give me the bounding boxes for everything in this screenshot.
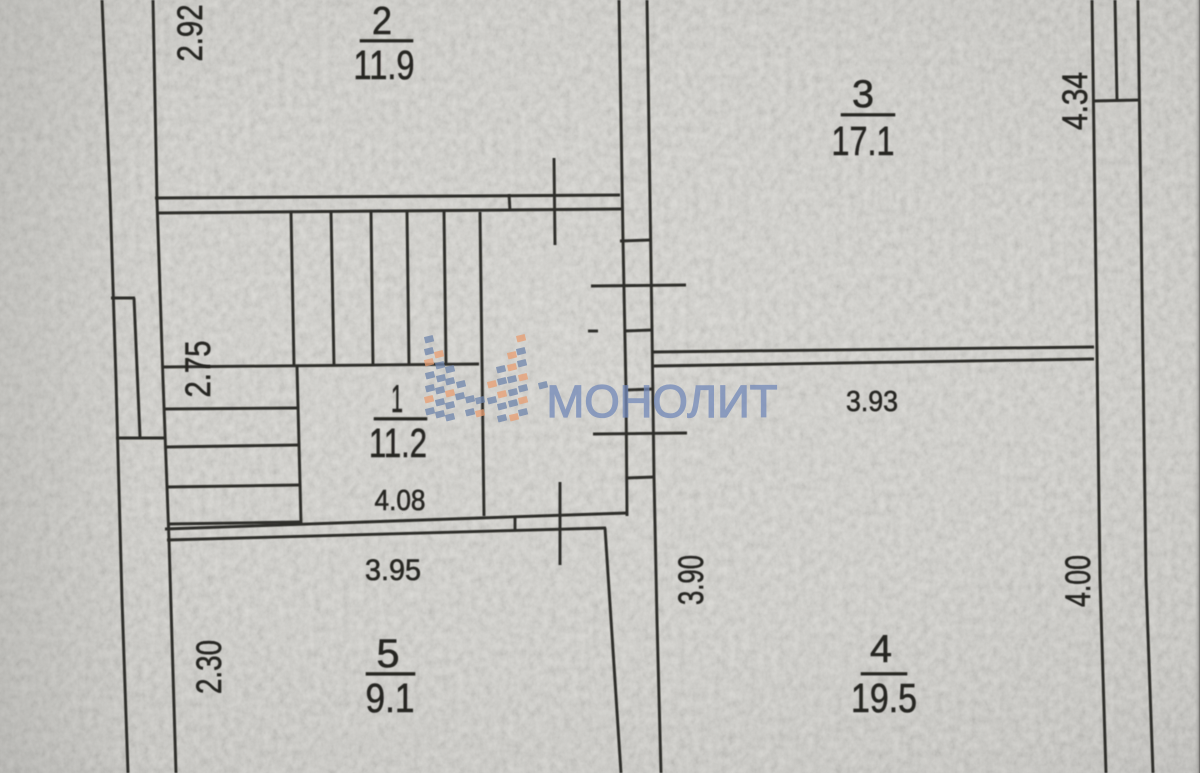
svg-text:3.93: 3.93 — [846, 386, 898, 418]
svg-text:5: 5 — [377, 632, 400, 676]
svg-text:3.95: 3.95 — [365, 554, 421, 587]
svg-text:2: 2 — [372, 0, 392, 43]
svg-text:3.90: 3.90 — [672, 555, 711, 605]
svg-text:2.75: 2.75 — [179, 341, 218, 398]
svg-text:2.30: 2.30 — [190, 640, 229, 694]
svg-text:2.92: 2.92 — [171, 5, 210, 62]
svg-text:4.08: 4.08 — [375, 485, 426, 517]
svg-text:4.00: 4.00 — [1059, 555, 1098, 607]
svg-text:9.1: 9.1 — [366, 675, 415, 721]
svg-text:11.9: 11.9 — [354, 42, 415, 88]
svg-text:17.1: 17.1 — [832, 118, 895, 164]
svg-text:4: 4 — [870, 628, 892, 671]
svg-text:1: 1 — [391, 378, 403, 421]
svg-text:МОНОЛИТ: МОНОЛИТ — [547, 376, 778, 427]
svg-text:4.34: 4.34 — [1056, 72, 1095, 130]
svg-text:11.2: 11.2 — [369, 420, 427, 466]
svg-text:3: 3 — [852, 73, 874, 116]
svg-text:19.5: 19.5 — [851, 675, 917, 721]
